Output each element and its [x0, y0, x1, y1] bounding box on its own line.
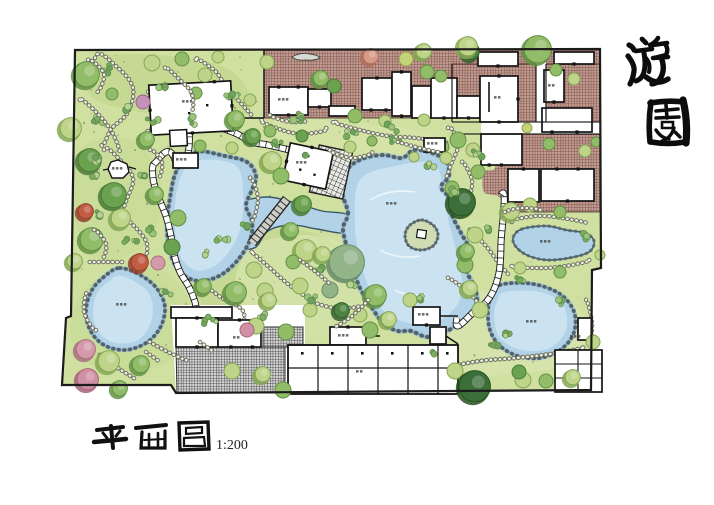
- svg-text:1:200: 1:200: [216, 438, 248, 453]
